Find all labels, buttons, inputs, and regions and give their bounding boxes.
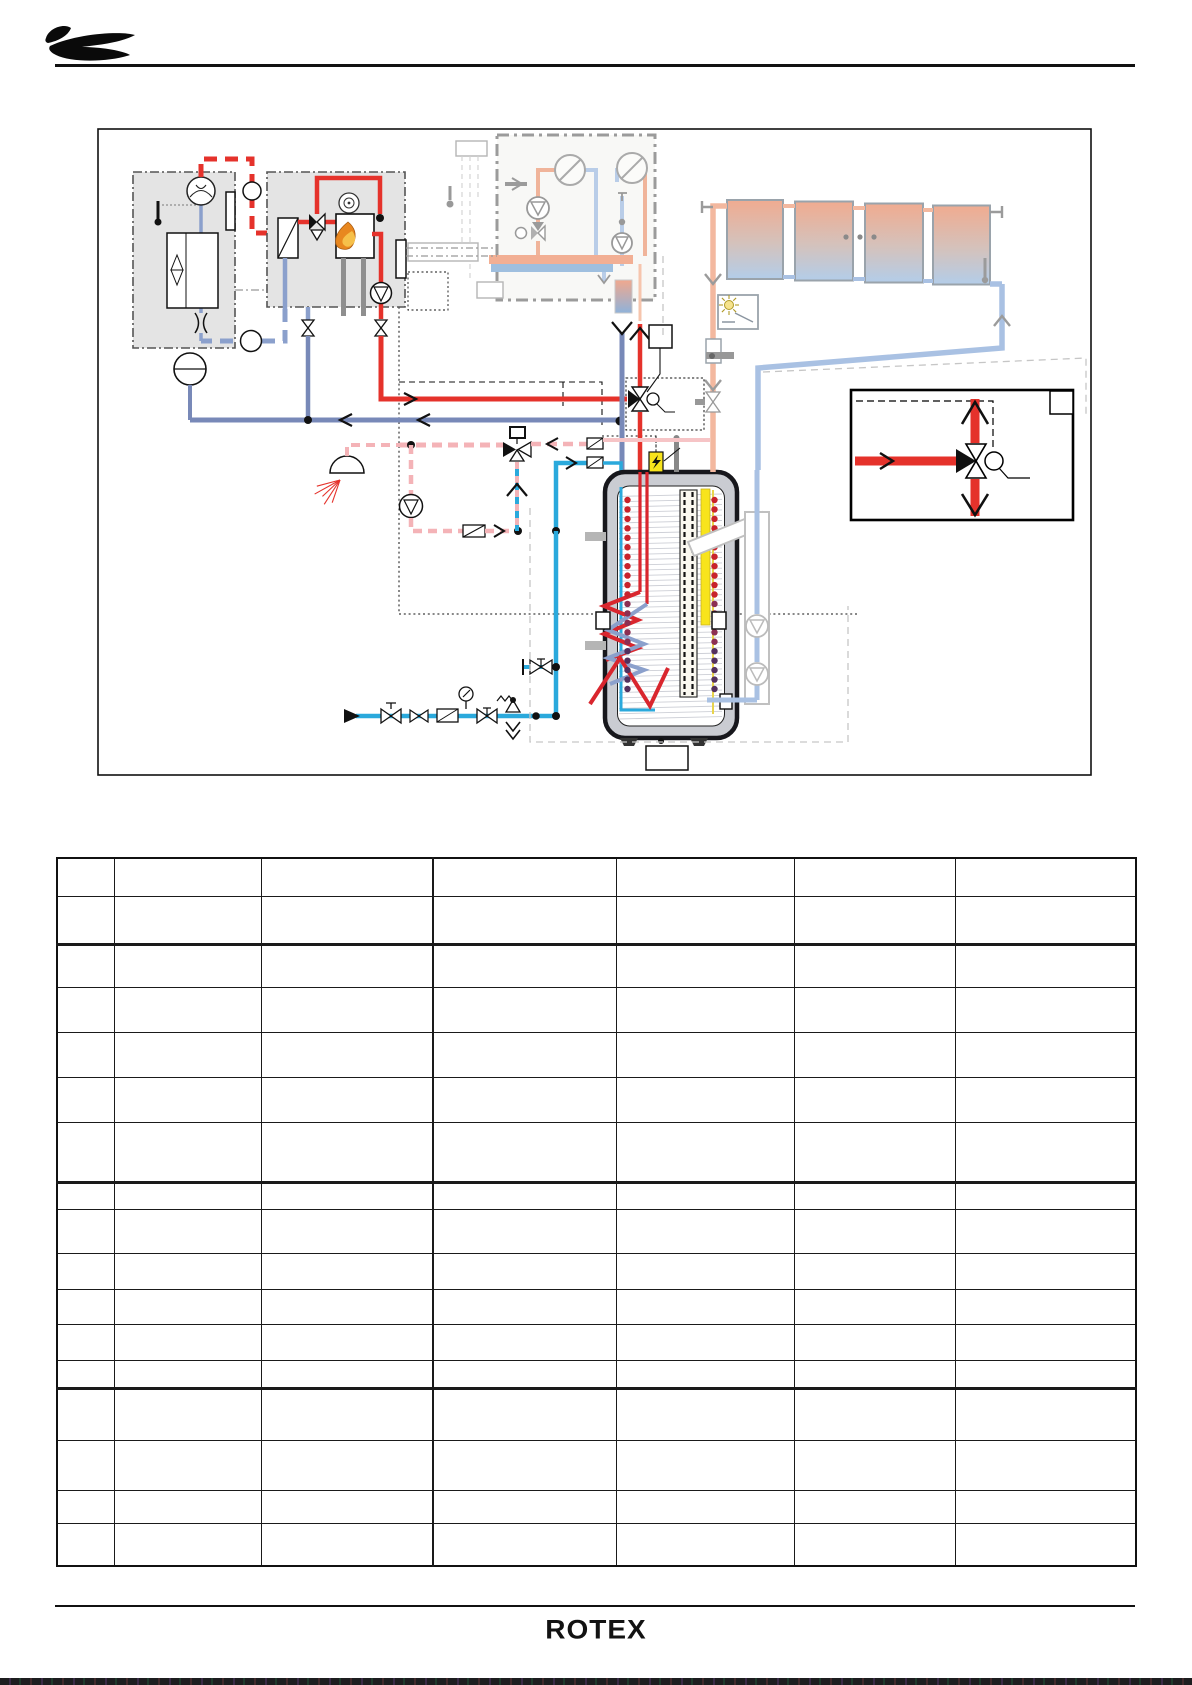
table-cell-empty — [794, 1209, 955, 1253]
drain-funnel — [506, 722, 520, 739]
table-cell-empty — [955, 1253, 1136, 1289]
table-cell-empty — [114, 1324, 261, 1360]
sun-icon — [719, 295, 739, 315]
table-cell-empty — [794, 1077, 955, 1122]
table-cell-empty — [794, 944, 955, 987]
table-cell-empty — [57, 1289, 114, 1324]
table-cell-empty — [616, 987, 794, 1032]
table-cell-empty — [616, 1032, 794, 1077]
label-box-empty — [649, 325, 672, 348]
table-cell-empty — [57, 944, 114, 987]
table-cell-empty — [114, 896, 261, 944]
table-cell-empty — [794, 1490, 955, 1523]
table-cell-empty — [955, 896, 1136, 944]
table-cell-empty — [261, 1032, 433, 1077]
table-cell-empty — [114, 1523, 261, 1566]
table-cell-empty — [114, 944, 261, 987]
table-cell-empty — [114, 1253, 261, 1289]
table-cell-empty — [616, 1324, 794, 1360]
table-cell-empty — [114, 1360, 261, 1388]
table-cell-empty — [57, 1122, 114, 1182]
air-separator — [706, 339, 721, 363]
table-cell-empty — [114, 1032, 261, 1077]
shower-spray — [315, 480, 340, 504]
table-cell-empty — [114, 1388, 261, 1440]
table-cell-empty — [261, 944, 433, 987]
specification-table — [56, 857, 1137, 1567]
table-cell-empty — [616, 944, 794, 987]
table-cell-empty — [794, 1324, 955, 1360]
table-cell-empty — [433, 1360, 616, 1388]
table-cell-empty — [616, 1523, 794, 1566]
table-cell-empty — [616, 1360, 794, 1388]
table-cell-empty — [955, 1388, 1136, 1440]
table-cell-empty — [114, 1209, 261, 1253]
table-cell-empty — [794, 1289, 955, 1324]
table-cell-empty — [955, 1077, 1136, 1122]
table-cell-empty — [616, 1209, 794, 1253]
label-box-empty — [646, 746, 688, 770]
electric-heater-rod — [701, 489, 710, 625]
table-cell-empty — [794, 1388, 955, 1440]
table-cell-empty — [955, 1032, 1136, 1077]
table-cell-empty — [794, 896, 955, 944]
table-cell-empty — [261, 1289, 433, 1324]
table-cell-empty — [261, 1253, 433, 1289]
table-cell-empty — [433, 858, 616, 896]
cold-water-inlet — [344, 531, 560, 739]
table-cell-empty — [794, 858, 955, 896]
table-cell-empty — [114, 1440, 261, 1490]
table-cell-empty — [794, 1182, 955, 1209]
table-cell-empty — [794, 1032, 955, 1077]
table-cell-empty — [261, 1388, 433, 1440]
table-cell-empty — [433, 896, 616, 944]
table-cell-empty — [433, 987, 616, 1032]
scan-edge-bar — [0, 1678, 1192, 1685]
table-cell-empty — [433, 1077, 616, 1122]
table-cell-empty — [261, 1182, 433, 1209]
table-cell-empty — [261, 1122, 433, 1182]
table-cell-empty — [57, 1077, 114, 1122]
tank-charge-risers — [612, 322, 675, 472]
table-cell-empty — [433, 1324, 616, 1360]
table-cell-empty — [57, 1490, 114, 1523]
table-cell-empty — [955, 1440, 1136, 1490]
table-cell-empty — [57, 1209, 114, 1253]
document-page: ROTEX — [0, 0, 1192, 1685]
table-cell-empty — [794, 1440, 955, 1490]
table-cell-empty — [261, 1440, 433, 1490]
table-cell-empty — [261, 1077, 433, 1122]
table-cell-empty — [261, 858, 433, 896]
table-cell-empty — [955, 1360, 1136, 1388]
table-cell-empty — [114, 1289, 261, 1324]
table-cell-empty — [57, 1324, 114, 1360]
controller-box-empty — [456, 141, 487, 156]
table-cell-empty — [433, 1289, 616, 1324]
table-cell-empty — [955, 1122, 1136, 1182]
table-cell-empty — [955, 1182, 1136, 1209]
table-cell-empty — [616, 1289, 794, 1324]
table-cell-empty — [955, 1490, 1136, 1523]
table-cell-empty — [955, 1209, 1136, 1253]
table-cell-empty — [57, 987, 114, 1032]
label-box-empty — [477, 282, 503, 298]
footer-rule — [55, 1605, 1135, 1607]
table-cell-empty — [57, 1360, 114, 1388]
table-cell-empty — [114, 1122, 261, 1182]
table-cell-empty — [616, 1388, 794, 1440]
table-cell-empty — [616, 1122, 794, 1182]
table-cell-empty — [433, 1182, 616, 1209]
table-cell-empty — [794, 1122, 955, 1182]
table-cell-empty — [616, 1077, 794, 1122]
table-cell-empty — [114, 1077, 261, 1122]
table-cell-empty — [616, 858, 794, 896]
inner-tank-cylinder — [680, 490, 697, 697]
table-cell-empty — [57, 1388, 114, 1440]
table-cell-empty — [114, 1182, 261, 1209]
table-cell-empty — [261, 1360, 433, 1388]
table-cell-empty — [114, 858, 261, 896]
table-cell-empty — [433, 1388, 616, 1440]
table-cell-empty — [261, 1490, 433, 1523]
rotex-logo: ROTEX — [0, 1615, 1192, 1645]
table-cell-empty — [794, 1360, 955, 1388]
table-cell-empty — [261, 1324, 433, 1360]
label-box-empty — [408, 243, 478, 261]
table-cell-empty — [57, 896, 114, 944]
table-cell-empty — [433, 944, 616, 987]
table-cell-empty — [616, 1182, 794, 1209]
table-cell-empty — [955, 1324, 1136, 1360]
table-cell-empty — [433, 1440, 616, 1490]
table-cell-empty — [433, 1253, 616, 1289]
table-cell-empty — [616, 1440, 794, 1490]
mixing-valve-actuator — [510, 427, 525, 438]
table-cell-empty — [261, 1209, 433, 1253]
spec-table-grid — [56, 857, 1137, 1567]
table-cell-empty — [433, 1523, 616, 1566]
hydraulic-schematic — [0, 0, 1192, 800]
table-cell-empty — [261, 987, 433, 1032]
table-cell-empty — [114, 1490, 261, 1523]
table-cell-empty — [57, 1523, 114, 1566]
table-cell-empty — [57, 1253, 114, 1289]
table-cell-empty — [433, 1490, 616, 1523]
heating-flow-return — [174, 307, 627, 426]
heat-pump-outdoor-unit — [133, 172, 235, 348]
table-cell-empty — [261, 1523, 433, 1566]
three-way-valve-inset — [851, 390, 1073, 520]
table-cell-empty — [57, 1032, 114, 1077]
table-cell-empty — [114, 987, 261, 1032]
table-cell-empty — [57, 1440, 114, 1490]
table-cell-empty — [261, 896, 433, 944]
table-cell-empty — [955, 1289, 1136, 1324]
table-cell-empty — [433, 1032, 616, 1077]
label-box-empty — [1050, 391, 1073, 414]
table-cell-empty — [616, 1253, 794, 1289]
table-cell-empty — [955, 987, 1136, 1032]
table-cell-empty — [955, 858, 1136, 896]
table-cell-empty — [794, 987, 955, 1032]
table-cell-empty — [794, 1523, 955, 1566]
table-cell-empty — [616, 896, 794, 944]
table-cell-empty — [57, 1182, 114, 1209]
table-cell-empty — [57, 858, 114, 896]
table-cell-empty — [794, 1253, 955, 1289]
table-cell-empty — [433, 1122, 616, 1182]
shower-outlet — [330, 456, 364, 473]
table-cell-empty — [616, 1490, 794, 1523]
table-cell-empty — [433, 1209, 616, 1253]
table-cell-empty — [955, 1523, 1136, 1566]
table-cell-empty — [955, 944, 1136, 987]
